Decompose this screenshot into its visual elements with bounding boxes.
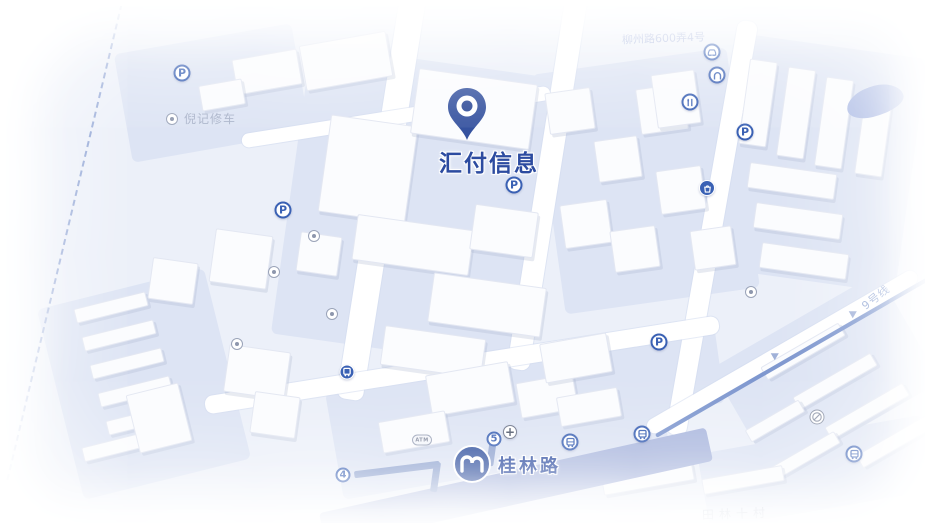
repair-shop-label: 倪记修车 [184,113,236,125]
metro-station-guilin-rd[interactable] [453,445,491,483]
road-label-19: 19号 [435,498,464,511]
address-label: 柳州路600弄4号 [622,32,705,46]
destination-label: 汇付信息 [404,144,574,178]
map-canvas[interactable]: PPPPPATM+54 倪记修车柳州路600弄4号19号田林十村9号线 汇付信息… [2,2,929,527]
location-pin[interactable] [444,86,490,142]
pin-icon [444,86,490,142]
district-label: 田林十村 [702,507,770,521]
metro-line9-label: 9号线 [860,283,892,311]
shanghai-metro-logo-icon [453,445,491,483]
map-screenshot: PPPPPATM+54 倪记修车柳州路600弄4号19号田林十村9号线 汇付信息… [0,0,931,529]
metro-station-label: 桂林路 [498,452,561,478]
